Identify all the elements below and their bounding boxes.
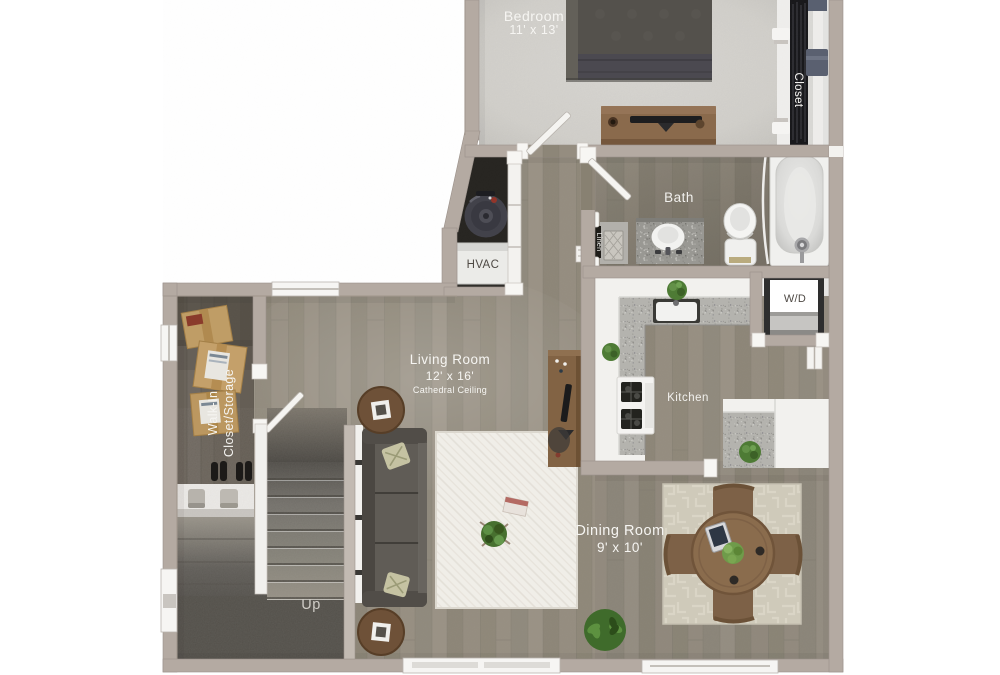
svg-text:Dining Room: Dining Room — [575, 523, 664, 539]
svg-text:Closet: Closet — [792, 73, 804, 108]
svg-text:Living Room: Living Room — [410, 352, 491, 367]
svg-text:12' x 16': 12' x 16' — [426, 369, 474, 383]
svg-text:HVAC: HVAC — [467, 259, 500, 271]
svg-text:Kitchen: Kitchen — [667, 392, 709, 404]
svg-text:Closet/Storage: Closet/Storage — [222, 369, 236, 457]
svg-text:11' x 13': 11' x 13' — [509, 23, 558, 37]
svg-text:Bedroom: Bedroom — [504, 8, 564, 24]
svg-text:Bath: Bath — [664, 190, 694, 205]
svg-text:Up: Up — [301, 597, 321, 613]
svg-text:W/D: W/D — [784, 293, 806, 305]
svg-text:Cathedral Ceiling: Cathedral Ceiling — [413, 385, 487, 395]
svg-text:Linen: Linen — [595, 233, 602, 252]
svg-text:Walk-In: Walk-In — [206, 391, 220, 436]
svg-text:9' x 10': 9' x 10' — [597, 540, 643, 555]
